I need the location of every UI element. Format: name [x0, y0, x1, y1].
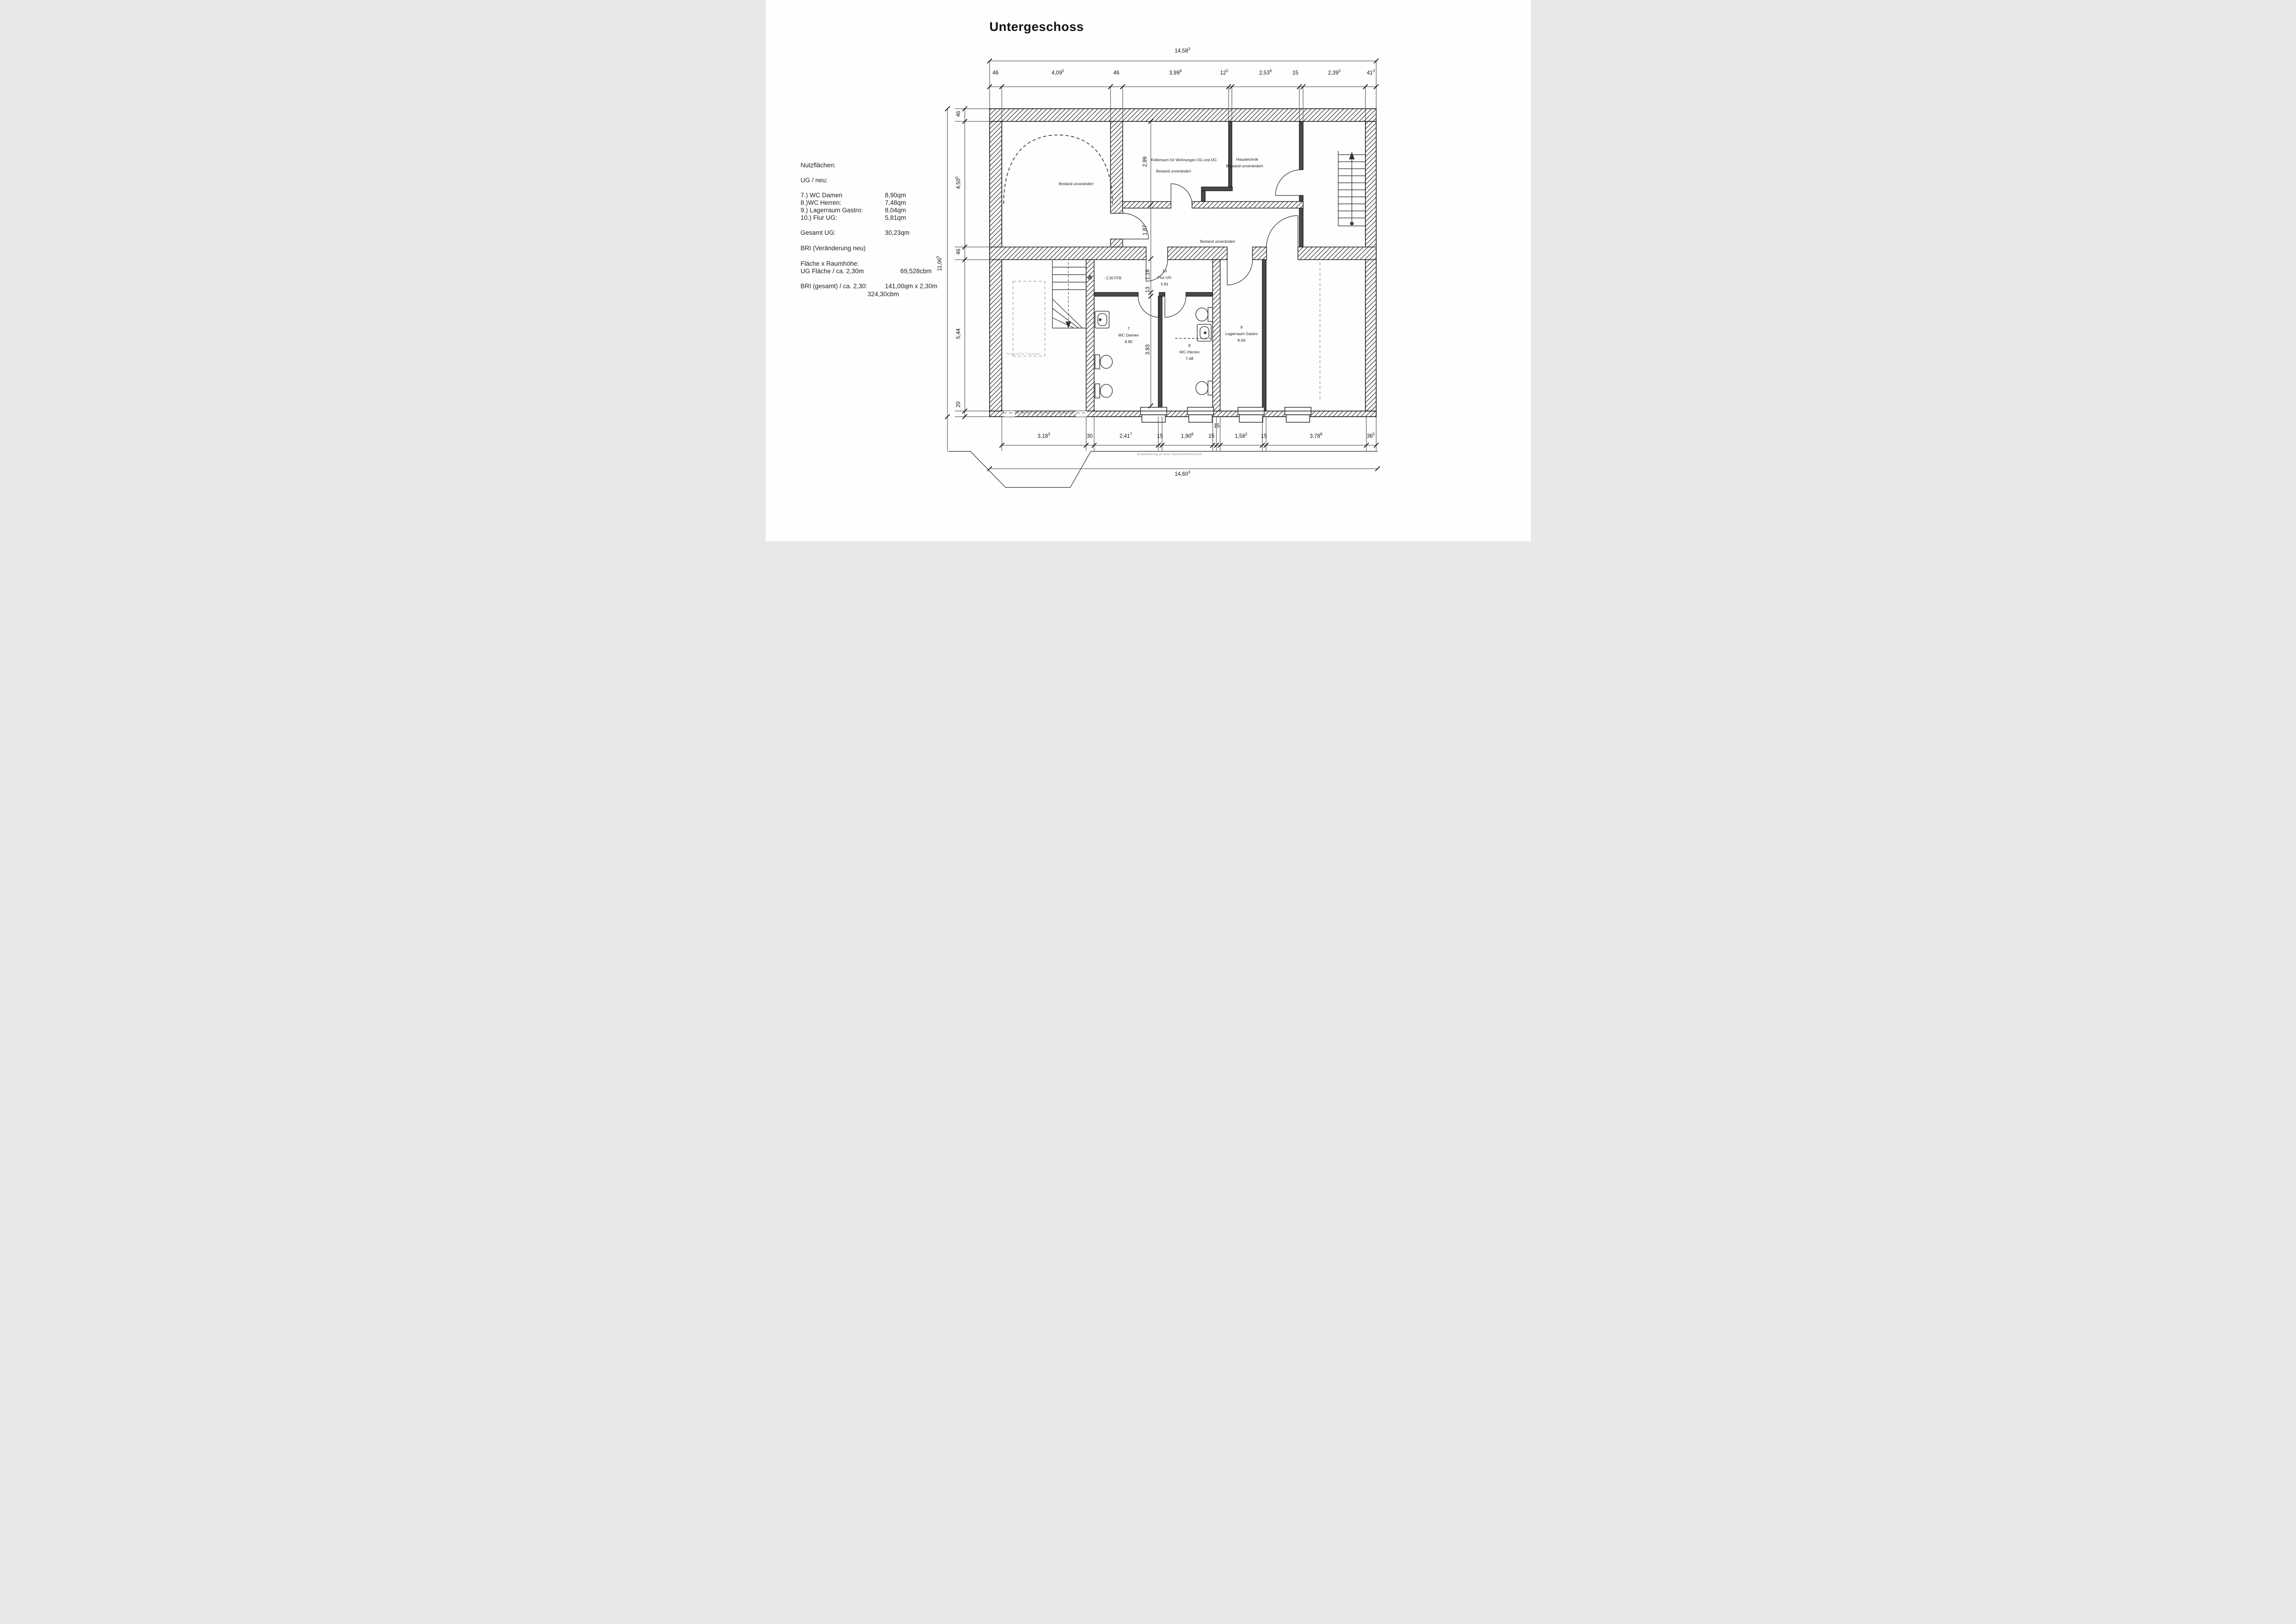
- dim-left-0: 46: [956, 97, 962, 130]
- door-icon: [1267, 216, 1298, 247]
- room-number: 7: [1096, 325, 1162, 332]
- room-list-item-label: 9.) Lagerraum Gastro:: [801, 207, 863, 214]
- room-area: 8.90: [1096, 338, 1162, 345]
- room-list-item-label: 10.) Flur UG:: [801, 214, 837, 221]
- dim-top-3: 3,998: [1157, 70, 1194, 76]
- room-label-kellerraum: Kellerraum für Wohnungen OG und DG: [1137, 158, 1231, 162]
- vault-arch-dashed: [1004, 135, 1112, 204]
- demolition-dashed-outline: [1013, 281, 1045, 356]
- room-name: WC-Herren: [1157, 349, 1223, 355]
- bri-gesamt-label: BRI (gesamt) / ca. 2,30:: [801, 283, 868, 290]
- window-icon: [1238, 407, 1264, 422]
- room-label-wc-herren: 8 WC-Herren 7.48: [1157, 342, 1223, 362]
- main-staircase: [1338, 151, 1365, 226]
- room-label-haustechnik: Haustechnik Bestand unverändert: [1226, 156, 1292, 169]
- section-polyline: [948, 451, 1378, 487]
- room-name: WC Damen: [1096, 332, 1162, 338]
- dim-top-overall: 14,583: [1164, 48, 1201, 54]
- notes-subheading: UG / neu:: [801, 177, 828, 184]
- window-icon: [1285, 407, 1311, 422]
- room-list-item-value: 8,90qm: [885, 192, 906, 199]
- door-icon: [1227, 260, 1252, 285]
- dim-top-0: 46: [977, 70, 1014, 76]
- dim-bottom-8: 15: [1245, 434, 1283, 439]
- dim-bottom-overall: 14,603: [1164, 471, 1201, 477]
- room-name: Lagerraum Gastro: [1209, 330, 1275, 337]
- dim-left-3: 5,44: [956, 317, 962, 350]
- dim-left-overall: 11,065: [937, 247, 943, 280]
- fundament-annotation: Fundament für Treppenlauf: [1006, 353, 1058, 356]
- room-label-haustechnik-line1: Haustechnik: [1226, 156, 1292, 163]
- dim-left-2: 46: [956, 235, 962, 268]
- room-area: 7.48: [1157, 355, 1223, 362]
- ffb-level-annotation: - 2,30 FFB: [1104, 276, 1122, 280]
- room-label-wc-damen: 7 WC Damen 8.90: [1096, 325, 1162, 345]
- bri-label: BRI (Veränderung neu): [801, 245, 866, 252]
- room-number: 10: [1132, 268, 1198, 274]
- room-label-haustechnik-line2: Bestand unverändert: [1226, 163, 1292, 169]
- page-title: Untergeschoss: [990, 20, 1084, 34]
- total-label: Gesamt UG:: [801, 229, 836, 236]
- dim-left-4: 20: [956, 388, 962, 421]
- interior-walls: [990, 121, 1376, 411]
- room-list-item-label: 7.) WC Damen: [801, 192, 842, 199]
- toilet-icon: [1196, 307, 1213, 322]
- room-area: 5.81: [1132, 281, 1198, 287]
- room-label-flur-ug: 10 Flur UG 5.81: [1132, 268, 1198, 287]
- dim-bottom-10: 365: [1352, 434, 1390, 439]
- toilet-icon: [1095, 384, 1112, 398]
- dim-top-4: 125: [1206, 70, 1243, 76]
- column-dot: [1088, 275, 1092, 280]
- door-icon: [1165, 296, 1186, 317]
- dim-top-7: 2,393: [1316, 70, 1353, 76]
- notes-heading: Nutzflächen:: [801, 162, 836, 169]
- stair-up-arrow-icon: [1349, 152, 1355, 159]
- room-list-item-value: 8,04qm: [885, 207, 906, 214]
- room-list-item-value: 5,81qm: [885, 214, 906, 221]
- dim-bottom-0: 3,183: [1025, 434, 1063, 439]
- dim-bottom-2: 2,417: [1107, 434, 1145, 439]
- ug-flaeche-value: 69,528cbm: [901, 268, 932, 275]
- room-label-lagerraum-gastro: 9 Lagerraum Gastro 8.04: [1209, 324, 1275, 344]
- room-label-kellerraum-bestand: Bestand unverändert: [1141, 169, 1207, 173]
- room-number: 9: [1209, 324, 1275, 330]
- dim-top-1: 4,095: [1039, 70, 1077, 76]
- dim-interior-1: 1,87: [1142, 214, 1148, 247]
- door-icon: [1275, 170, 1301, 195]
- bri-gesamt-value: 141,00qm x 2,30m: [885, 283, 938, 290]
- total-value: 30,23qm: [885, 229, 910, 236]
- dim-top-8: 413: [1352, 70, 1390, 76]
- bri-gesamt-value2: 324,30cbm: [868, 291, 899, 298]
- dim-top-2: 46: [1098, 70, 1135, 76]
- window-icon: [1141, 407, 1167, 422]
- room-name: Flur UG: [1132, 274, 1198, 281]
- room-label-bestand-mitte: Bestand unverändert: [1185, 239, 1251, 244]
- toilet-icon: [1196, 381, 1213, 395]
- ug-flaeche-label: UG Fläche / ca. 2,30m: [801, 268, 864, 275]
- stair-down-arrow-icon: [1066, 322, 1071, 328]
- dim-bottom-9: 3,788: [1297, 434, 1335, 439]
- drain-annotation: Entwässerung an best. Hauskontrollschach…: [1137, 453, 1212, 456]
- flaeche-label: Fläche x Raumhöhe:: [801, 260, 859, 267]
- door-icon: [1171, 184, 1192, 205]
- dim-top-6: 15: [1277, 70, 1314, 76]
- room-list-item-value: 7,48qm: [885, 199, 906, 206]
- dim-bottom-6: 15: [1198, 423, 1236, 429]
- room-area: 8.04: [1209, 337, 1275, 344]
- window-icon: [1187, 407, 1214, 422]
- toilet-icon: [1095, 355, 1112, 369]
- floor-plan-sheet: Untergeschoss Nutzflächen: UG / neu: 7.)…: [766, 0, 1531, 541]
- outer-walls: [990, 109, 1376, 417]
- room-list-item-label: 8.)WC Herren:: [801, 199, 842, 206]
- room-label-bestand-topleft: Bestand unverändert: [1044, 182, 1109, 186]
- dim-bottom-1: 30: [1071, 434, 1109, 439]
- dim-left-1: 4,505: [956, 166, 962, 199]
